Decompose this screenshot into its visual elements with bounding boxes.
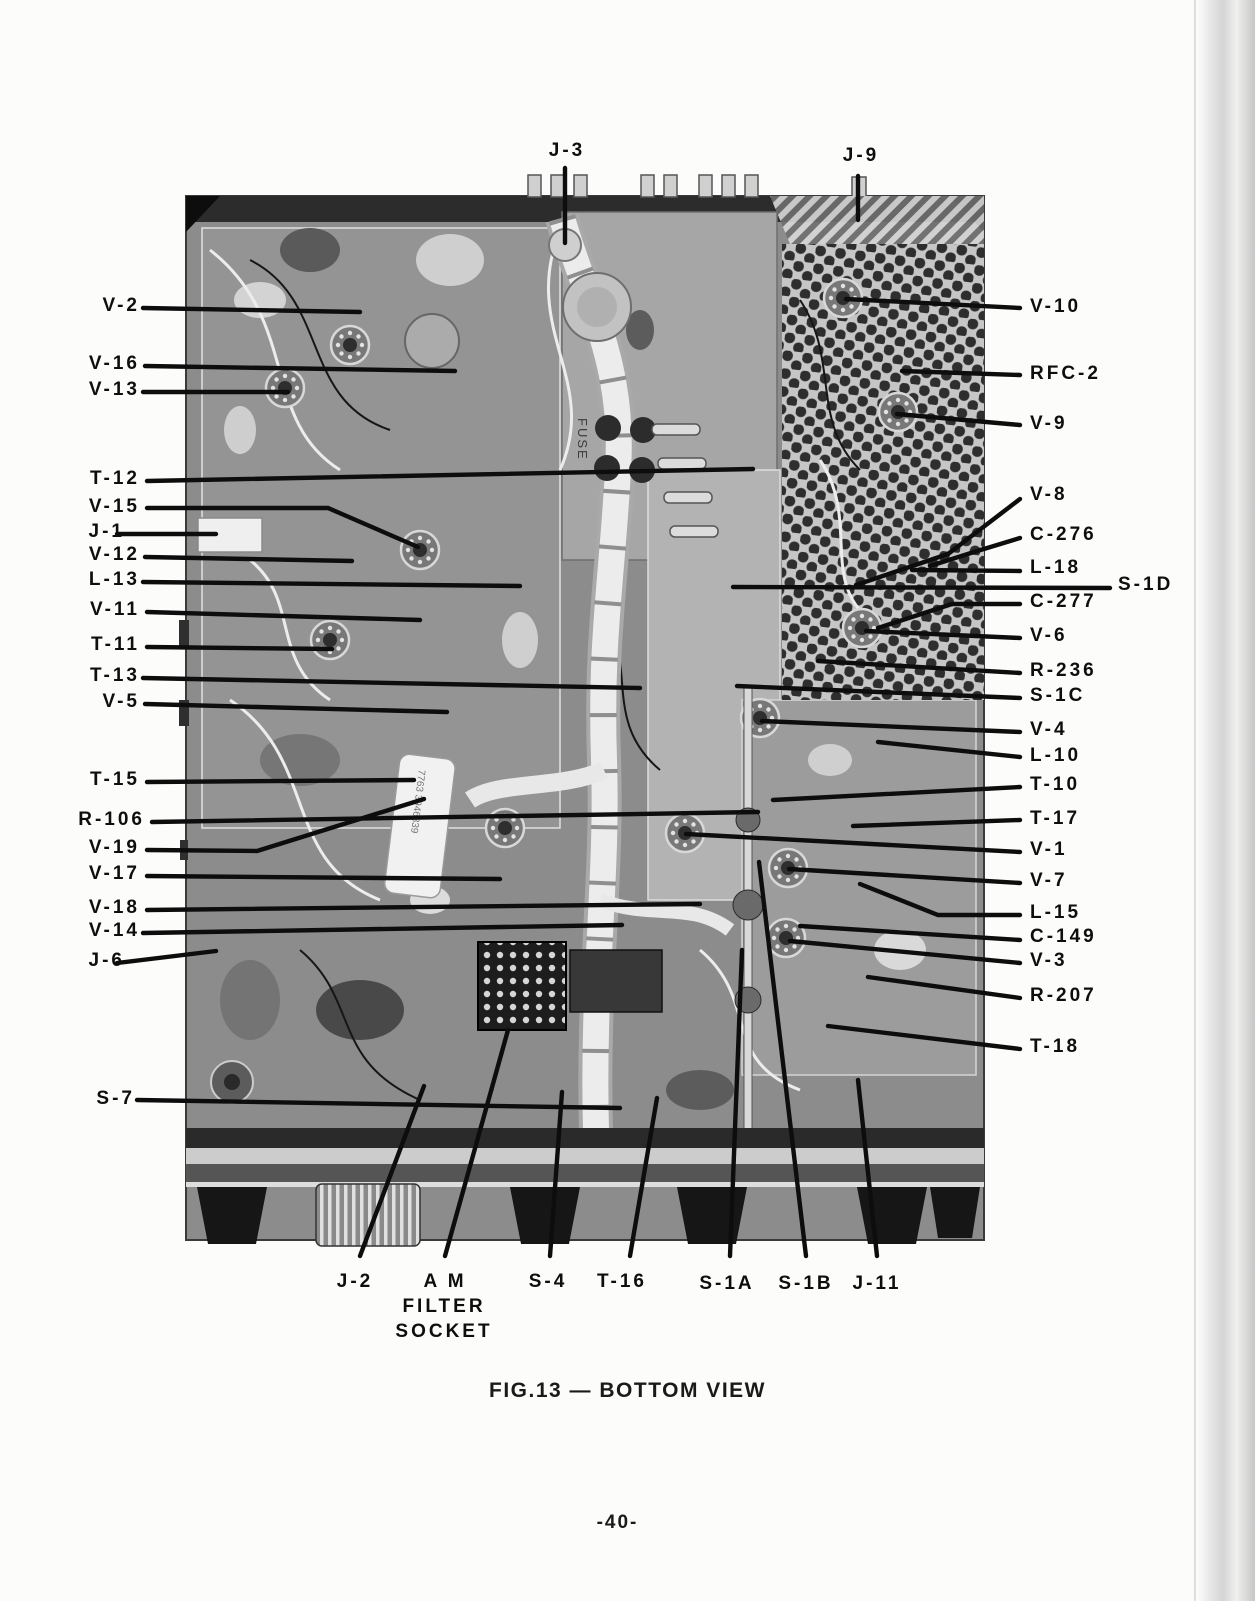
label-c276: C-276 [1030,524,1097,546]
label-v10: V-10 [1030,296,1081,318]
label-l18: L-18 [1030,557,1081,579]
label-c149: C-149 [1030,926,1097,948]
label-s1c: S-1C [1030,685,1085,707]
label-v4: V-4 [1030,719,1068,741]
label-j9: J-9 [843,145,879,167]
page-edge-line [1194,0,1196,1601]
label-s7: S-7 [96,1088,135,1110]
label-l10: L-10 [1030,745,1081,767]
label-l15: L-15 [1030,902,1081,924]
label-rfc2: RFC-2 [1030,363,1101,385]
label-v12: V-12 [89,544,140,566]
label-s1d: S-1D [1118,574,1173,596]
label-v16: V-16 [89,353,140,375]
label-am-line3: SOCKET [395,1321,492,1343]
label-v1: V-1 [1030,839,1068,861]
label-v19: V-19 [89,837,140,859]
label-r236: R-236 [1030,660,1097,682]
label-c277: C-277 [1030,591,1097,613]
label-v13: V-13 [89,379,140,401]
label-t13: T-13 [90,665,140,687]
label-t17: T-17 [1030,808,1080,830]
label-r207: R-207 [1030,985,1097,1007]
label-t15: T-15 [90,769,140,791]
manual-page: FUSE [0,0,1255,1601]
label-am-line1: A M [423,1271,466,1293]
label-s1b: S-1B [778,1273,833,1295]
label-v9: V-9 [1030,413,1068,435]
label-v5: V-5 [102,691,140,713]
label-v7: V-7 [1030,870,1068,892]
label-l13: L-13 [89,569,140,591]
label-v14: V-14 [89,920,140,942]
label-am-line2: FILTER [402,1296,485,1318]
label-v8: V-8 [1030,484,1068,506]
label-v17: V-17 [89,863,140,885]
label-v15: V-15 [89,496,140,518]
label-r106: R-106 [78,809,145,831]
fuse-text: FUSE [575,418,590,461]
page-number: -40- [0,1512,1235,1534]
label-t10: T-10 [1030,774,1080,796]
label-j2: J-2 [337,1271,373,1293]
label-t16: T-16 [597,1271,647,1293]
label-v2: V-2 [102,295,140,317]
label-j11: J-11 [853,1273,902,1295]
label-t12: T-12 [90,468,140,490]
label-s4: S-4 [529,1271,568,1293]
label-j6: J-6 [89,950,125,972]
label-v6: V-6 [1030,625,1068,647]
label-t11: T-11 [91,634,140,656]
figure-caption: FIG.13 — BOTTOM VIEW [0,1379,1255,1403]
label-v18: V-18 [89,897,140,919]
label-j1: J-1 [89,521,125,543]
label-t18: T-18 [1030,1036,1080,1058]
chassis-photo-figure: FUSE [0,0,1255,1601]
label-j3: J-3 [549,140,585,162]
label-s1a: S-1A [699,1273,754,1295]
label-v3: V-3 [1030,950,1068,972]
am-filter-socket-block [478,942,566,1030]
chassis-photo: FUSE [179,175,984,1246]
label-v11: V-11 [90,599,140,621]
page-edge-shadow [1197,0,1255,1601]
